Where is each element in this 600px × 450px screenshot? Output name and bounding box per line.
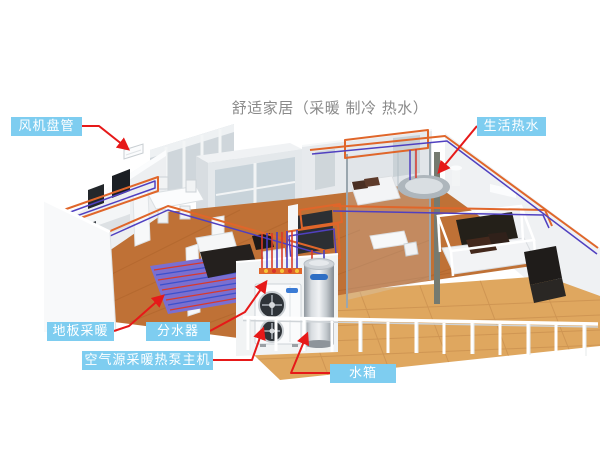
label-heat-pump-text: 空气源采暖热泵主机 [84, 353, 210, 368]
leader-fan-coil [82, 126, 128, 149]
label-hot-water: 生活热水 [477, 117, 546, 136]
label-manifold-text: 分水器 [157, 324, 199, 339]
label-water-tank-text: 水箱 [349, 366, 377, 381]
label-hot-water-text: 生活热水 [483, 119, 539, 134]
house-scene-svg [0, 0, 600, 450]
label-heat-pump: 空气源采暖热泵主机 [82, 351, 213, 370]
glass-partitions [347, 142, 440, 308]
water-tank [304, 250, 334, 348]
page-title: 舒适家居（采暖 制冷 热水） [210, 97, 450, 118]
house-illustration: 舒适家居（采暖 制冷 热水） 风机盘管 生活热水 地板采暖 分水器 空气源采暖热… [0, 0, 600, 450]
label-floor-heating: 地板采暖 [47, 322, 114, 341]
fan-coil-unit [124, 144, 143, 159]
label-floor-heating-text: 地板采暖 [52, 324, 108, 339]
heat-pump-unit [255, 284, 301, 347]
label-water-tank: 水箱 [330, 364, 396, 383]
label-fan-coil-text: 风机盘管 [18, 119, 74, 134]
label-fan-coil: 风机盘管 [11, 117, 82, 136]
label-manifold: 分水器 [146, 322, 210, 341]
